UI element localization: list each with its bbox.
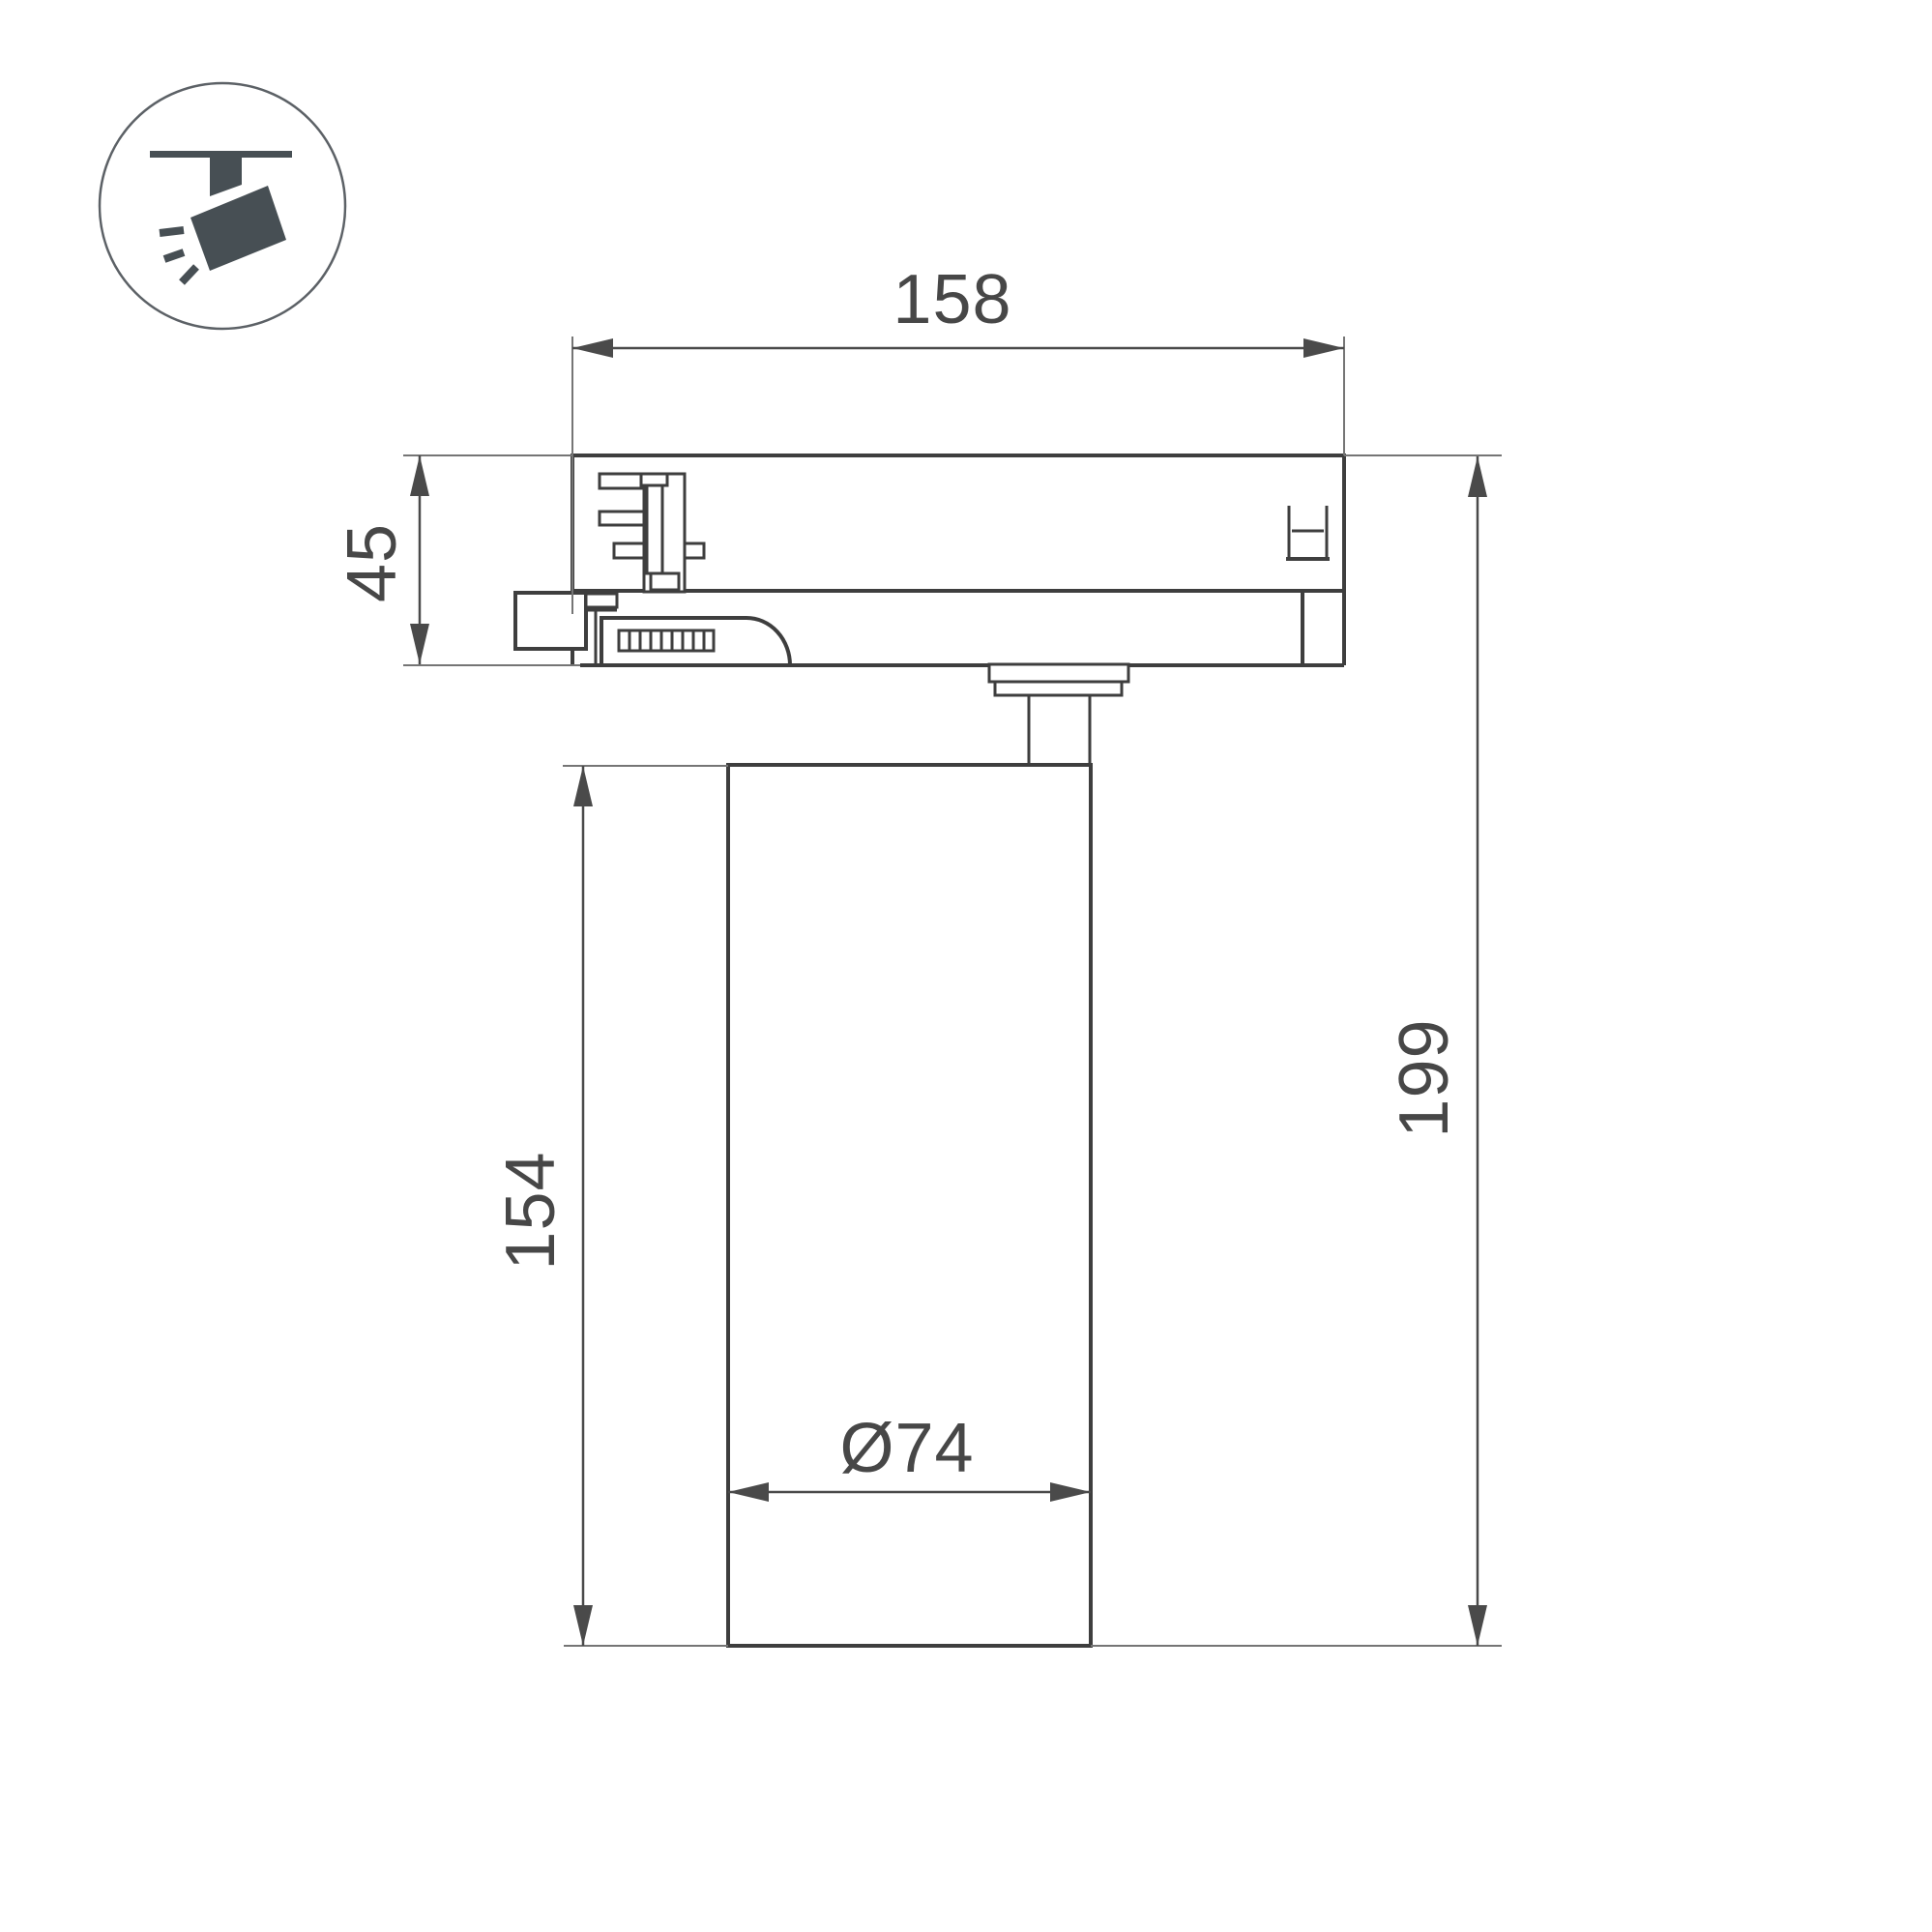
- dimension-label-158: 158: [893, 261, 1011, 338]
- dimension-label-45: 45: [334, 523, 411, 602]
- dimension-label-d74: Ø74: [839, 1410, 974, 1487]
- latch-block: [515, 593, 586, 649]
- contact-pin-cap: [641, 474, 667, 485]
- dimension-body-height: 154: [492, 766, 728, 1646]
- product-type-icon: [100, 83, 345, 329]
- technical-drawing: 158 45 154 199 Ø74: [0, 0, 1932, 1932]
- contact-prong-bottom: [614, 543, 644, 558]
- latch-slider: [586, 594, 617, 607]
- arrowhead-bottom: [1468, 1605, 1487, 1646]
- swivel-step-upper: [989, 664, 1128, 682]
- adapter-upper-box: [572, 455, 1344, 591]
- dimension-total-height: 199: [1091, 455, 1502, 1646]
- lamp-body: [728, 664, 1128, 1646]
- contact-pin: [647, 485, 662, 573]
- arrowhead-left: [572, 338, 613, 358]
- arrowhead-right: [1303, 338, 1344, 358]
- track-adapter: [515, 455, 1344, 665]
- contact-prong-top: [600, 474, 644, 488]
- track-bar-icon: [150, 151, 292, 158]
- contact-prong-middle: [600, 512, 644, 525]
- arrowhead-top: [1468, 456, 1487, 497]
- arrowhead-bottom: [573, 1605, 593, 1646]
- vent-grille: [619, 630, 714, 651]
- cylinder-body: [728, 765, 1091, 1646]
- dimension-label-154: 154: [492, 1151, 570, 1270]
- contact-foot: [651, 573, 679, 590]
- arrowhead-top: [573, 766, 593, 806]
- arrowhead-bottom: [410, 624, 429, 664]
- drawing-canvas: 158 45 154 199 Ø74: [0, 0, 1932, 1932]
- swivel-step-lower: [995, 682, 1122, 695]
- arrowhead-top: [410, 455, 429, 496]
- driver-housing: [601, 618, 790, 665]
- contact-prong-right: [685, 543, 704, 558]
- dimension-label-199: 199: [1386, 1018, 1463, 1137]
